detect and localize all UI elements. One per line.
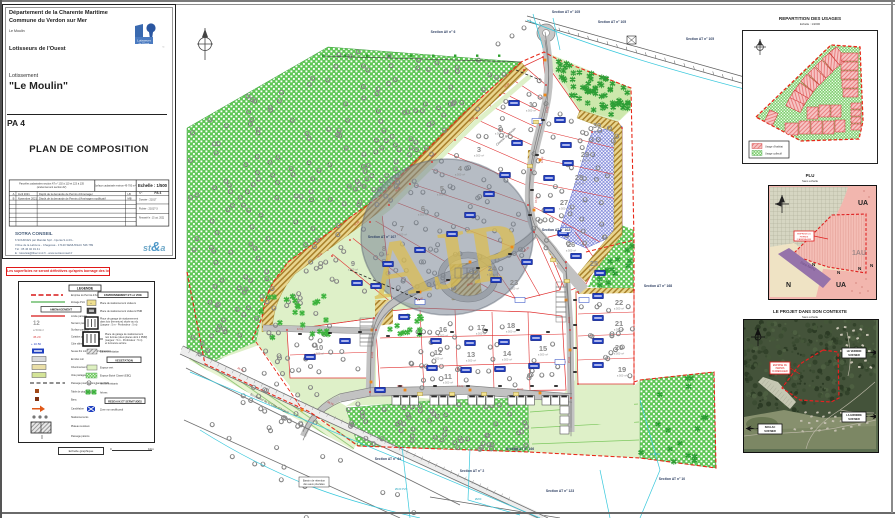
svg-text:Section AT n° 105: Section AT n° 105 <box>598 20 626 24</box>
svg-text:VEGETATION: VEGETATION <box>115 358 133 362</box>
svg-text:Echelle : 1/500: Echelle : 1/500 <box>138 183 168 188</box>
svg-text:2: 2 <box>498 123 502 132</box>
svg-text:Usage d'habitat: Usage d'habitat <box>765 145 783 149</box>
svg-text:Plateau surélevé: Plateau surélevé <box>71 425 90 428</box>
svg-text:Section AT n° 168: Section AT n° 168 <box>644 284 672 288</box>
svg-text:PERMIS: PERMIS <box>799 236 808 238</box>
svg-text:a 500 m²: a 500 m² <box>433 357 443 361</box>
svg-text:Candélabre: Candélabre <box>71 408 85 411</box>
svg-text:Passage piétons: Passage piétons <box>71 435 90 438</box>
svg-text:Dossier : 21017: Dossier : 21017 <box>139 199 157 202</box>
svg-text:Remanié le : 15 oct. 2021: Remanié le : 15 oct. 2021 <box>139 216 165 219</box>
svg-text:28: 28 <box>575 173 583 182</box>
svg-text:a 500 m²: a 500 m² <box>538 353 548 357</box>
svg-text:a 500 m²: a 500 m² <box>509 287 519 291</box>
svg-text:a 500 m²: a 500 m² <box>476 332 486 336</box>
svg-text:PERMIS: PERMIS <box>776 368 785 370</box>
svg-text:Ø160 PVC: Ø160 PVC <box>395 487 408 491</box>
svg-text:SUR MER: SUR MER <box>765 430 777 433</box>
svg-text:15.00: 15.00 <box>567 356 571 363</box>
svg-text:SOULAC: SOULAC <box>765 427 776 430</box>
svg-text:Place de stationnement visiteu: Place de stationnement visiteurs PMR <box>100 310 142 313</box>
svg-text:Arbres existants: Arbres existants <box>100 383 119 386</box>
svg-text:Parcelles cadastrales section: Parcelles cadastrales section AT n° 102 … <box>19 182 84 185</box>
svg-text:a 500 m²: a 500 m² <box>580 159 590 163</box>
svg-text:18: 18 <box>507 321 515 330</box>
svg-text:10: 10 <box>315 343 323 352</box>
svg-text:a 500 m²: a 500 m² <box>614 352 624 356</box>
svg-text:24: 24 <box>488 264 497 273</box>
svg-text:a 500 m²: a 500 m² <box>559 207 569 211</box>
svg-text:a 500 m²: a 500 m² <box>574 182 584 186</box>
svg-text:(Largeur : 5 m - Profondeur :: (Largeur : 5 m - Profondeur : 5 m) <box>100 324 138 327</box>
svg-text:Enrobé noir: Enrobé noir <box>71 358 84 361</box>
svg-text:(anciennement section AV): (anciennement section AV) <box>37 186 67 189</box>
svg-text:12: 12 <box>434 348 442 357</box>
svg-text:B: B <box>13 196 15 200</box>
svg-text:Table de pique nique: Table de pique nique <box>71 391 95 394</box>
svg-text:12: 12 <box>33 321 40 327</box>
svg-text:19: 19 <box>618 365 626 374</box>
svg-text:N° :: N° : <box>139 192 143 195</box>
svg-text:Section AT n° 105: Section AT n° 105 <box>552 10 580 14</box>
svg-text:a 500 m²: a 500 m² <box>506 330 516 334</box>
svg-text:Section AV n° 6: Section AV n° 6 <box>431 30 456 34</box>
svg-text:a 500 m²: a 500 m² <box>502 358 512 362</box>
svg-text:Zonage PLU: Zonage PLU <box>71 301 85 304</box>
svg-text:14.20: 14.20 <box>457 384 464 388</box>
svg-text:13: 13 <box>467 350 475 359</box>
svg-text:ENVIRONNEMENT ET LA VOIE: ENVIRONNEMENT ET LA VOIE <box>104 293 142 297</box>
svg-text:LEGENDE: LEGENDE <box>77 287 94 291</box>
svg-text:Espace Boisé Classé (EBC): Espace Boisé Classé (EBC) <box>100 375 131 378</box>
svg-text:LE VERDON: LE VERDON <box>847 351 862 354</box>
svg-text:SUR MER: SUR MER <box>849 418 861 421</box>
svg-text:N: N <box>786 282 791 289</box>
svg-text:16.00: 16.00 <box>517 387 524 391</box>
svg-text:29: 29 <box>581 150 589 159</box>
svg-text:™: ™ <box>162 46 165 49</box>
svg-text:27: 27 <box>560 198 568 207</box>
svg-text:a 500 m²: a 500 m² <box>437 193 447 197</box>
svg-text:a 500 m²: a 500 m² <box>474 154 484 158</box>
svg-text:+ 10.50: + 10.50 <box>31 342 41 346</box>
svg-text:1: 1 <box>529 100 533 109</box>
svg-text:Stationnements: Stationnements <box>71 416 89 419</box>
svg-text:a 500 m²: a 500 m² <box>397 233 407 237</box>
svg-text:EMPRISE DU: EMPRISE DU <box>797 233 811 235</box>
svg-text:des eaux pluviales: des eaux pluviales <box>303 482 325 486</box>
svg-text:A: A <box>13 192 15 196</box>
svg-text:16: 16 <box>439 325 447 334</box>
svg-text:a 500 m²: a 500 m² <box>466 359 476 363</box>
svg-text:9: 9 <box>351 259 355 268</box>
svg-text:14: 14 <box>503 349 512 358</box>
svg-text:11: 11 <box>444 372 452 381</box>
svg-text:Fichier : 21017-3: Fichier : 21017-3 <box>139 207 158 210</box>
svg-text:8: 8 <box>382 244 386 253</box>
svg-text:17: 17 <box>477 323 485 332</box>
svg-text:15.50: 15.50 <box>397 384 404 388</box>
svg-text:Arbres: Arbres <box>100 392 108 395</box>
svg-text:SUR MER: SUR MER <box>849 354 861 357</box>
svg-text:30: 30 <box>593 121 601 130</box>
svg-text:a 500 m²: a 500 m² <box>379 253 389 257</box>
svg-text:Section AT n° 2: Section AT n° 2 <box>460 469 485 473</box>
svg-text:5: 5 <box>440 184 444 193</box>
svg-text:Banc: Banc <box>71 399 77 402</box>
svg-text:Dans la limitation: Dans la limitation <box>100 351 120 354</box>
svg-text:Section AT n° 105: Section AT n° 105 <box>686 37 714 41</box>
svg-text:19.00: 19.00 <box>567 316 571 323</box>
svg-text:a 500 m²: a 500 m² <box>592 130 602 134</box>
svg-text:EMPRISE DU: EMPRISE DU <box>773 365 788 367</box>
svg-text:Novembre 2021: Novembre 2021 <box>18 196 38 200</box>
svg-text:LB: LB <box>128 192 131 196</box>
svg-text:D'AMENAGER: D'AMENAGER <box>773 370 789 373</box>
svg-text:Place de stationnement visiteu: Place de stationnement visiteurs <box>100 302 137 305</box>
svg-text:6: 6 <box>421 204 425 213</box>
svg-text:a 500 m²: a 500 m² <box>566 249 576 253</box>
svg-text:Espace vert: Espace vert <box>100 367 114 370</box>
svg-text:Dépôt de la demande de Permis: Dépôt de la demande de Permis d'Aménager… <box>39 196 106 200</box>
svg-text:D'AMENAGER: D'AMENAGER <box>796 238 811 241</box>
svg-text:et fermeture arrière: et fermeture arrière <box>105 342 127 345</box>
svg-text:21.00: 21.00 <box>370 351 374 358</box>
svg-text:Bassin de rétention: Bassin de rétention <box>303 479 326 483</box>
svg-text:Section AT n° 64: Section AT n° 64 <box>375 457 402 461</box>
svg-text:20: 20 <box>615 343 623 352</box>
svg-text:Zone non aedificandi: Zone non aedificandi <box>100 409 124 412</box>
svg-text:a 500m²: a 500m² <box>33 328 44 332</box>
svg-text:RESEAUX ET SERVITUDES: RESEAUX ET SERVITUDES <box>108 399 142 403</box>
svg-text:23: 23 <box>510 278 518 287</box>
svg-text:UA: UA <box>858 200 868 207</box>
svg-text:+: + <box>90 301 92 305</box>
svg-text:Section AT n° 102: Section AT n° 102 <box>542 228 570 232</box>
svg-text:Usage collectif: Usage collectif <box>765 152 782 156</box>
svg-text:Avril 2021: Avril 2021 <box>18 192 30 196</box>
svg-text:a 500 m²: a 500 m² <box>348 268 358 272</box>
svg-text:3: 3 <box>477 145 481 154</box>
svg-text:21: 21 <box>615 319 623 328</box>
svg-text:Voie partagée: Voie partagée <box>71 374 87 377</box>
svg-text:7: 7 <box>400 224 404 233</box>
svg-text:Section AT n° 107: Section AT n° 107 <box>368 235 396 239</box>
svg-text:Dépôt de la demande de Permis: Dépôt de la demande de Permis d'Aménager <box>39 192 93 196</box>
svg-text:a 500 m²: a 500 m² <box>438 334 448 338</box>
svg-text:12.50: 12.50 <box>540 156 545 163</box>
svg-text:22: 22 <box>615 298 623 307</box>
svg-text:15: 15 <box>539 344 547 353</box>
svg-text:PA 4: PA 4 <box>154 191 161 195</box>
svg-text:de l'Ouest: de l'Ouest <box>139 43 150 46</box>
svg-text:a 500 m²: a 500 m² <box>526 109 536 113</box>
svg-text:Surface cadastrale environ 49: Surface cadastrale environ 49 700 m² <box>94 185 136 188</box>
svg-text:26: 26 <box>567 240 575 249</box>
svg-text:12.00: 12.00 <box>297 327 304 331</box>
svg-text:MB: MB <box>128 196 132 200</box>
svg-text:a 500 m²: a 500 m² <box>487 273 497 277</box>
svg-text:AMENAGEMENT: AMENAGEMENT <box>50 308 73 312</box>
svg-text:EP Ø300: EP Ø300 <box>650 452 661 456</box>
svg-text:a 500 m²: a 500 m² <box>455 173 465 177</box>
svg-text:Ø200: Ø200 <box>475 497 482 501</box>
svg-text:1AU: 1AU <box>852 250 866 257</box>
svg-text:LA GIRONDE: LA GIRONDE <box>847 415 863 418</box>
svg-text:45.20: 45.20 <box>33 335 41 339</box>
svg-text:25: 25 <box>590 259 598 268</box>
svg-text:a 500 m²: a 500 m² <box>443 381 453 385</box>
svg-text:a 500 m²: a 500 m² <box>614 328 624 332</box>
svg-text:a 500 m²: a 500 m² <box>418 213 428 217</box>
svg-text:Section AT n° 10: Section AT n° 10 <box>659 477 686 481</box>
svg-text:a 500 m²: a 500 m² <box>617 374 627 378</box>
svg-text:a 500 m²: a 500 m² <box>614 307 624 311</box>
svg-text:Section AT n° 123: Section AT n° 123 <box>546 489 574 493</box>
svg-text:Section AT n° 166: Section AT n° 166 <box>506 447 534 451</box>
svg-text:UA: UA <box>836 282 846 289</box>
